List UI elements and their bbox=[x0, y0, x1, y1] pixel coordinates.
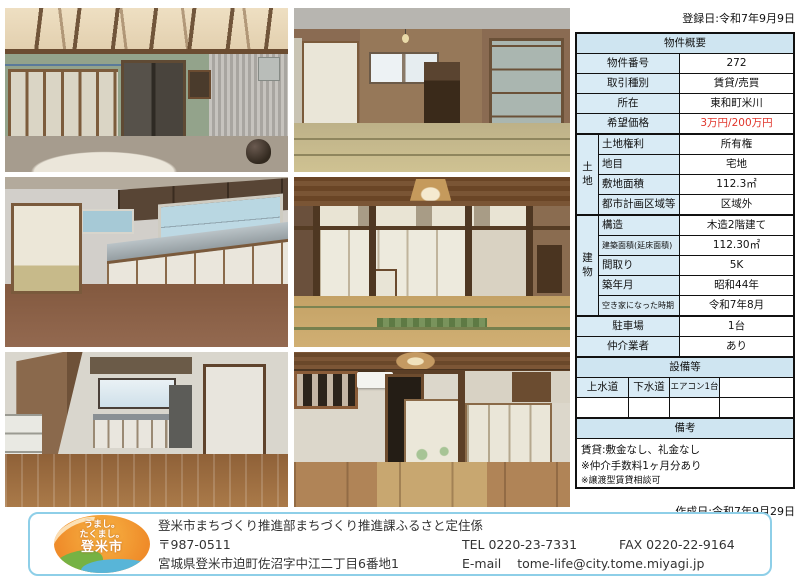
small-window bbox=[188, 70, 212, 99]
remarks-line: 賃貸:敷金なし、礼金なし bbox=[581, 442, 789, 458]
phone-number: TEL 0220-23-7331 bbox=[462, 535, 577, 554]
kitchen-window bbox=[98, 378, 176, 408]
table-row: 土地権利 所有権 bbox=[599, 135, 793, 154]
equipment-cell-empty bbox=[577, 398, 629, 417]
property-table: 物件概要 物件番号 272 取引種別 賃貸/売買 所在 東和町米川 希望価格 3… bbox=[575, 32, 795, 489]
white-panels bbox=[8, 69, 118, 136]
dark-appliance bbox=[169, 385, 192, 449]
wood-post bbox=[369, 206, 376, 296]
wall-shelf bbox=[512, 372, 551, 401]
land-group-label: 土地 bbox=[577, 135, 599, 214]
row-label: 希望価格 bbox=[577, 114, 680, 133]
row-label: 築年月 bbox=[599, 276, 680, 295]
glass-sliding-door bbox=[121, 60, 186, 140]
pot bbox=[246, 139, 271, 164]
property-details-column: 登録日:令和7年9月9日 物件概要 物件番号 272 取引種別 賃貸/売買 所在… bbox=[575, 10, 795, 519]
table-row: 築年月 昭和44年 bbox=[599, 275, 793, 295]
tatami-seam bbox=[294, 138, 570, 140]
photo-grid bbox=[5, 8, 570, 507]
kitchen-cabinets bbox=[93, 420, 178, 448]
row-label: 土地権利 bbox=[599, 135, 680, 154]
department-name: 登米市まちづくり推進部まちづくり推進課ふるさと定住係 bbox=[158, 516, 770, 535]
tatami-floor bbox=[294, 123, 570, 172]
photo-wood-floor-room bbox=[5, 352, 288, 507]
table-row: 物件番号 272 bbox=[577, 53, 793, 73]
remarks-box: 賃貸:敷金なし、礼金なし ※仲介手数料1ヶ月分あり ※譲渡型賃貸相談可 bbox=[577, 438, 793, 487]
row-label: 所在 bbox=[577, 94, 680, 113]
tome-city-logo: うまし。 たくまし。 登米市 bbox=[54, 515, 150, 573]
price-value: 3万円/200万円 bbox=[680, 114, 793, 133]
photo-tatami-room-2f bbox=[294, 8, 570, 172]
table-row: 敷地面積 112.3㎡ bbox=[599, 174, 793, 194]
kitchen-floor bbox=[5, 284, 288, 347]
table-row: 建築面積(延床面積) 112.30㎡ bbox=[599, 235, 793, 255]
row-value: 所有権 bbox=[680, 135, 793, 154]
email-address: tome-life@city.tome.miyagi.jp bbox=[517, 554, 704, 573]
table-row: 空き家になった時期 令和7年8月 bbox=[599, 295, 793, 315]
logo-line-1: うまし。 bbox=[54, 520, 150, 530]
row-value: 木造2階建て bbox=[680, 216, 793, 235]
postal-code: 〒987-0511 bbox=[158, 535, 462, 554]
transom-window bbox=[294, 371, 358, 410]
wood-post bbox=[526, 206, 533, 296]
table-row: 都市計画区域等 区域外 bbox=[599, 194, 793, 214]
tatami-border bbox=[294, 327, 570, 330]
wood-floor bbox=[5, 454, 288, 507]
table-row-price: 希望価格 3万円/200万円 bbox=[577, 113, 793, 133]
logo-text: うまし。 たくまし。 登米市 bbox=[54, 520, 150, 555]
equipment-title: 設備等 bbox=[577, 356, 793, 377]
equipment-row-empty bbox=[577, 397, 793, 417]
row-value: あり bbox=[680, 337, 793, 356]
row-value: 5K bbox=[680, 256, 793, 275]
street-address: 宮城県登米市迫町佐沼字中江二丁目6番地1 bbox=[158, 554, 462, 573]
wood-post bbox=[458, 371, 465, 462]
row-label: 仲介業者 bbox=[577, 337, 680, 356]
logo-line-3: 登米市 bbox=[54, 540, 150, 555]
table-row: 取引種別 賃貸/売買 bbox=[577, 73, 793, 93]
row-label: 物件番号 bbox=[577, 54, 680, 73]
right-cabinet bbox=[537, 245, 562, 293]
equipment-cell-empty bbox=[670, 398, 720, 417]
tatami-green-strip bbox=[377, 318, 487, 327]
property-flyer-page: 登録日:令和7年9月9日 物件概要 物件番号 272 取引種別 賃貸/売買 所在… bbox=[0, 0, 800, 586]
row-label: 構造 bbox=[599, 216, 680, 235]
photo-entrance-doma bbox=[5, 8, 288, 172]
row-value: 東和町米川 bbox=[680, 94, 793, 113]
photo-tatami-room-aircon bbox=[294, 352, 570, 507]
table-row: 所在 東和町米川 bbox=[577, 93, 793, 113]
row-label: 敷地面積 bbox=[599, 175, 680, 194]
sand-patch bbox=[22, 149, 186, 172]
registration-date: 登録日:令和7年9月9日 bbox=[575, 10, 795, 26]
table-row: 駐車場 1台 bbox=[577, 315, 793, 336]
row-value: 区域外 bbox=[680, 195, 793, 214]
row-value: 昭和44年 bbox=[680, 276, 793, 295]
fax-number: FAX 0220-22-9164 bbox=[619, 535, 735, 554]
wood-post bbox=[465, 206, 472, 296]
tatami-floor bbox=[294, 462, 570, 507]
row-value: 112.3㎡ bbox=[680, 175, 793, 194]
building-rows: 構造 木造2階建て 建築面積(延床面積) 112.30㎡ 間取り 5K 築年月 … bbox=[599, 216, 793, 315]
row-label: 取引種別 bbox=[577, 74, 680, 93]
left-room bbox=[294, 206, 313, 296]
photo-large-tatami-room bbox=[294, 177, 570, 347]
remarks-title: 備考 bbox=[577, 417, 793, 438]
table-row: 間取り 5K bbox=[599, 255, 793, 275]
tatami-border bbox=[294, 306, 570, 308]
footer-line-3: 宮城県登米市迫町佐沼字中江二丁目6番地1 E-mail tome-life@ci… bbox=[158, 554, 770, 573]
equipment-cell-empty bbox=[720, 398, 793, 417]
table-row: 構造 木造2階建て bbox=[599, 216, 793, 235]
transom-panels bbox=[316, 206, 548, 228]
row-value: 272 bbox=[680, 54, 793, 73]
remarks-line: ※仲介手数料1ヶ月分あり bbox=[581, 458, 789, 474]
tatami-seam bbox=[294, 154, 570, 156]
dark-band bbox=[90, 357, 192, 374]
row-value: 112.30㎡ bbox=[680, 236, 793, 255]
equipment-cell: 下水道 bbox=[629, 378, 670, 397]
round-light bbox=[396, 352, 435, 369]
window-small bbox=[81, 209, 133, 233]
table-row: 仲介業者 あり bbox=[577, 336, 793, 356]
building-group-label: 建物 bbox=[577, 216, 599, 315]
roof-beams bbox=[5, 8, 288, 52]
row-label: 空き家になった時期 bbox=[599, 296, 680, 315]
doorway bbox=[11, 203, 82, 294]
land-rows: 土地権利 所有権 地目 宅地 敷地面積 112.3㎡ 都市計画区域等 区域外 bbox=[599, 135, 793, 214]
equipment-cell: 上水道 bbox=[577, 378, 629, 397]
row-value: 令和7年8月 bbox=[680, 296, 793, 315]
remarks-line: ※譲渡型賃貸相談可 bbox=[581, 474, 789, 488]
row-label: 間取り bbox=[599, 256, 680, 275]
electric-box bbox=[258, 57, 280, 80]
wood-post bbox=[313, 206, 320, 296]
row-label: 都市計画区域等 bbox=[599, 195, 680, 214]
equipment-row: 上水道 下水道 エアコン1台 bbox=[577, 377, 793, 397]
row-value: 賃貸/売買 bbox=[680, 74, 793, 93]
table-title: 物件概要 bbox=[577, 34, 793, 53]
row-label: 建築面積(延床面積) bbox=[599, 236, 680, 255]
footer-line-2: 〒987-0511 TEL 0220-23-7331 FAX 0220-22-9… bbox=[158, 535, 770, 554]
row-label: 地目 bbox=[599, 155, 680, 174]
equipment-cell-empty bbox=[629, 398, 670, 417]
row-value: 1台 bbox=[680, 317, 793, 336]
contact-footer: うまし。 たくまし。 登米市 登米市まちづくり推進部まちづくり推進課ふるさと定住… bbox=[28, 512, 772, 576]
equipment-cell: エアコン1台 bbox=[670, 378, 720, 397]
row-value: 宅地 bbox=[680, 155, 793, 174]
group-text: 土地 bbox=[582, 161, 594, 187]
light-bulb bbox=[402, 34, 409, 43]
building-section: 建物 構造 木造2階建て 建築面積(延床面積) 112.30㎡ 間取り 5K bbox=[577, 214, 793, 315]
ceiling bbox=[294, 8, 570, 29]
fusuma-doors bbox=[465, 403, 552, 466]
photo-kitchen bbox=[5, 177, 288, 347]
logo-line-2: たくまし。 bbox=[54, 530, 150, 540]
row-label: 駐車場 bbox=[577, 317, 680, 336]
land-section: 土地 土地権利 所有権 地目 宅地 敷地面積 112.3㎡ bbox=[577, 133, 793, 214]
fusuma-door bbox=[302, 41, 358, 127]
group-text: 建物 bbox=[582, 252, 594, 278]
pipe-line bbox=[5, 64, 124, 66]
pendant-light bbox=[410, 179, 451, 201]
fusuma-door bbox=[404, 399, 460, 467]
email-label: E-mail bbox=[462, 554, 501, 573]
wood-cabinet bbox=[424, 62, 460, 123]
fusuma-edge bbox=[294, 38, 302, 127]
footer-text-block: 登米市まちづくり推進部まちづくり推進課ふるさと定住係 〒987-0511 TEL… bbox=[158, 516, 770, 573]
equipment-cell-empty bbox=[720, 378, 793, 397]
table-row: 地目 宅地 bbox=[599, 154, 793, 174]
